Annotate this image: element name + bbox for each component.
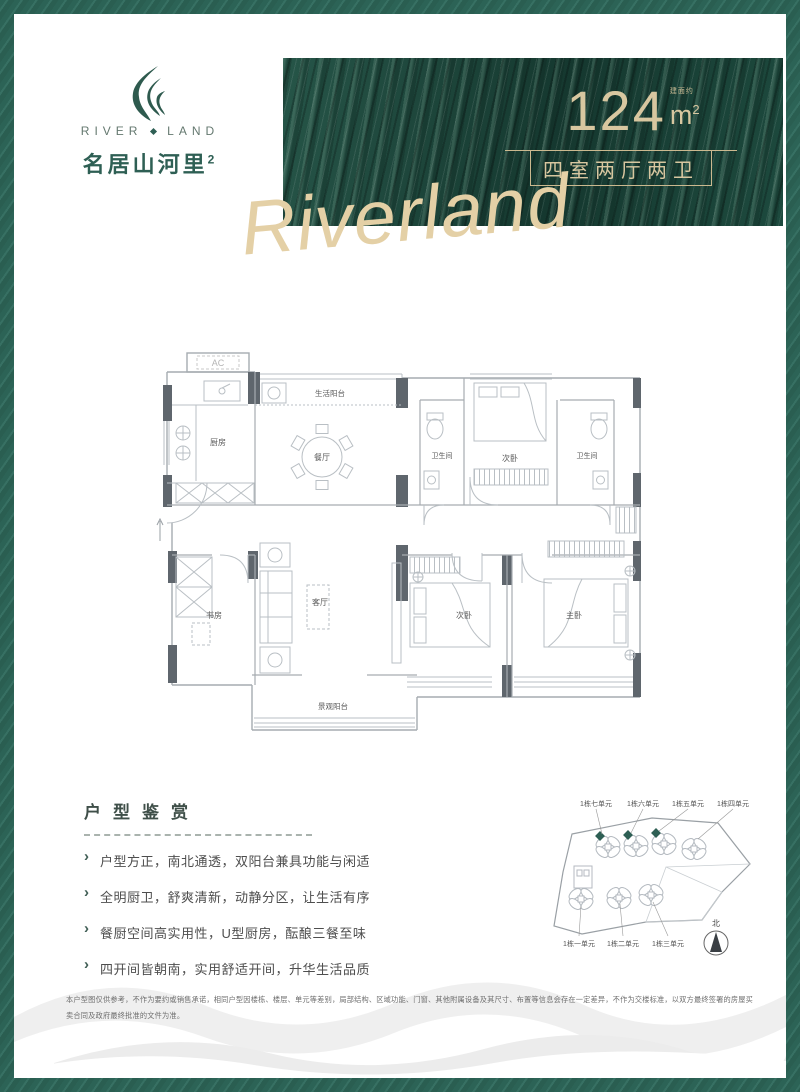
ac-closet: AC [197, 356, 239, 369]
headline-banner: 124 建面约 m2 四室两厅两卫 [283, 58, 783, 226]
poster-page: RIVER LAND 名居山河里2 124 建面约 m2 四室两厅两卫 Rive… [0, 0, 800, 1092]
chevron-right-icon: › [84, 848, 90, 865]
list-item: ›户型方正，南北通透，双阳台兼具功能与闲适 [84, 851, 534, 870]
chevron-right-icon: › [84, 920, 90, 937]
list-item: ›餐厨空间高实用性，U型厨房，酝酿三餐至味 [84, 923, 534, 942]
area-unit: 建面约 m2 [670, 86, 700, 129]
chevron-right-icon: › [84, 884, 90, 901]
flame-leaf-icon [128, 64, 172, 122]
area-figure: 124 建面约 m2 [493, 80, 773, 142]
dashed-divider [84, 834, 312, 836]
wall-pillars [163, 372, 641, 697]
interior-walls [167, 372, 640, 697]
master-furniture [522, 541, 635, 660]
label-service-balcony: 生活阳台 [315, 388, 345, 398]
label-living: 客厅 [312, 597, 328, 607]
living-furniture [260, 543, 401, 673]
site-buildings [567, 831, 708, 911]
label-bath1: 卫生间 [432, 451, 453, 460]
label-kitchen: 厨房 [210, 437, 226, 447]
brand-name-en: RIVER LAND [45, 124, 255, 138]
label-view-balcony: 景观阳台 [318, 701, 348, 711]
layout-label-box: 四室两厅两卫 [530, 150, 712, 186]
site-label: 1栋六单元 [627, 799, 659, 808]
label-bedroom-top: 次卧 [502, 453, 518, 463]
list-item: ›全明厨卫，舒爽清新，动静分区，让生活有序 [84, 887, 534, 906]
entrance-structure [574, 866, 592, 888]
appreciation-title: 户型鉴赏 [84, 798, 534, 823]
diamond-icon [150, 128, 157, 135]
bedroom-bottom-furniture [410, 553, 490, 647]
layout-label: 四室两厅两卫 [543, 154, 699, 183]
label-dining: 餐厅 [314, 453, 330, 462]
label-bedroom-bottom: 次卧 [456, 610, 472, 620]
area-prefix: 建面约 [670, 86, 700, 96]
ac-label: AC [212, 358, 225, 368]
disclaimer-text: 本户型图仅供参考，不作为要约或销售承诺，相同户型因楼栋、楼层、单元等差别，局部结… [66, 992, 758, 1024]
bath1-fixtures [424, 413, 444, 525]
label-master: 主卧 [566, 610, 582, 620]
label-study: 书房 [206, 610, 222, 620]
site-label: 1栋五单元 [672, 799, 704, 808]
north-label: 北 [712, 919, 720, 928]
area-value: 124 [566, 80, 665, 142]
bedroom-top-furniture [470, 383, 548, 505]
brand-logo: RIVER LAND 名居山河里2 [45, 64, 255, 179]
site-label: 1栋四单元 [717, 799, 749, 808]
bath2-fixtures [590, 413, 636, 533]
brand-name-cn: 名居山河里2 [45, 147, 255, 179]
label-bath2: 卫生间 [577, 451, 598, 460]
site-boundary [554, 818, 750, 934]
floorplan: AC [152, 345, 657, 745]
study-furniture [176, 555, 248, 645]
site-labels: 1栋七单元 1栋六单元 1栋五单元 1栋四单元 1栋一单元 1栋二单元 1栋三单… [563, 799, 749, 948]
site-label: 1栋七单元 [580, 799, 612, 808]
